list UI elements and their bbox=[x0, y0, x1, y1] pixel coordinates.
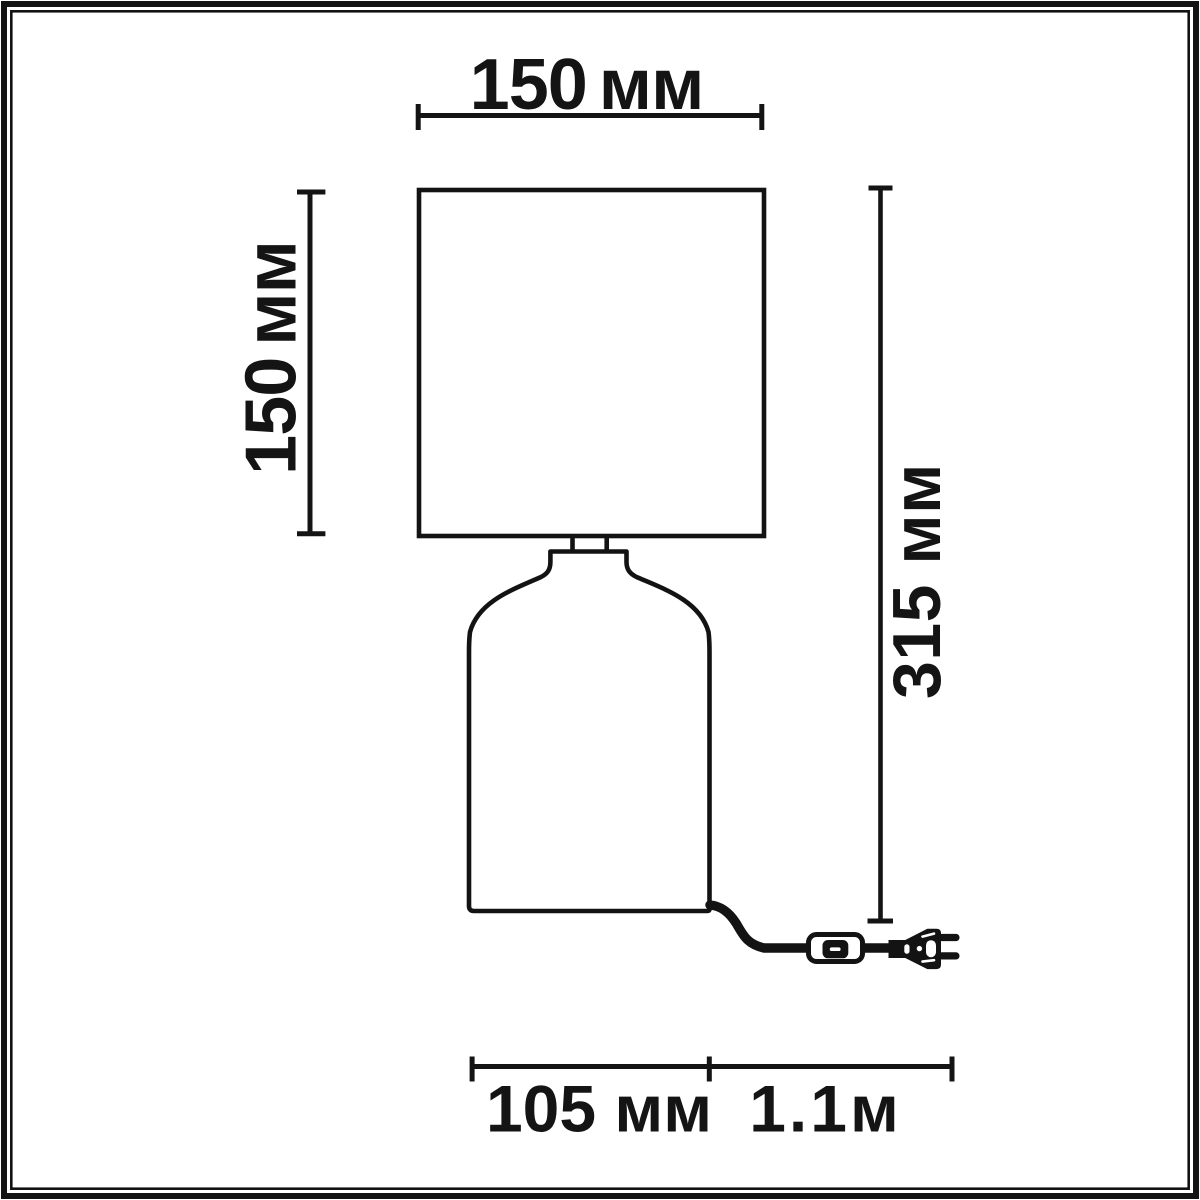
svg-text:150 мм: 150 мм bbox=[470, 45, 704, 125]
svg-text:1.1м: 1.1м bbox=[749, 1072, 902, 1146]
svg-text:315 мм: 315 мм bbox=[879, 463, 955, 699]
svg-text:150 мм: 150 мм bbox=[232, 241, 312, 475]
svg-text:105 мм: 105 мм bbox=[486, 1072, 712, 1146]
